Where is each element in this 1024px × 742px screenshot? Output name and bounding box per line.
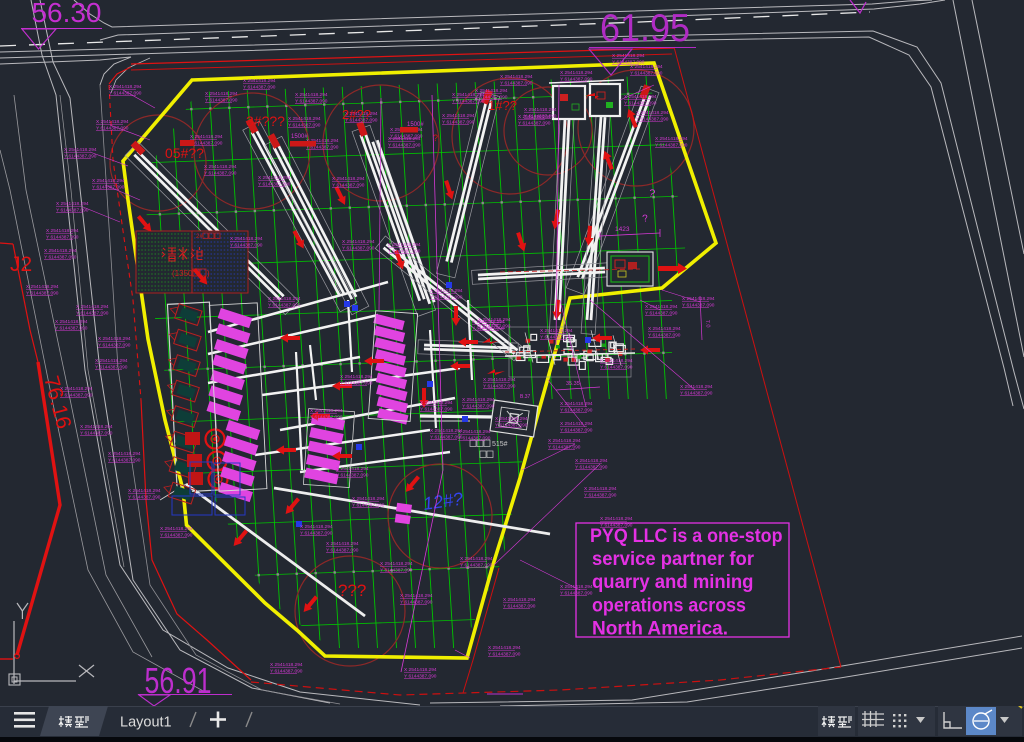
- svg-text:1500#: 1500#: [407, 122, 424, 128]
- svg-text:North America.: North America.: [592, 617, 728, 639]
- svg-text:???: ???: [338, 581, 366, 600]
- svg-text:1500#: 1500#: [291, 134, 308, 140]
- svg-text:B.37: B.37: [520, 394, 531, 400]
- svg-text:56.30: 56.30: [32, 0, 102, 28]
- svg-text:7.0: 7.0: [704, 320, 711, 328]
- svg-text:Layout1: Layout1: [120, 715, 172, 731]
- svg-text:05#??: 05#??: [165, 145, 204, 161]
- svg-text:2#: 2#: [196, 234, 203, 240]
- svg-text:service partner for: service partner for: [592, 548, 754, 570]
- svg-text:61.95: 61.95: [600, 7, 690, 50]
- svg-text:35.35: 35.35: [566, 381, 580, 387]
- svg-text:?: ?: [433, 133, 438, 143]
- svg-text:PYQ LLC is a one-stop: PYQ LLC is a one-stop: [590, 525, 783, 547]
- svg-text:2#??: 2#??: [342, 107, 371, 122]
- svg-text:operations across: operations across: [592, 594, 746, 616]
- svg-text:515#: 515#: [492, 441, 508, 448]
- svg-text:3#???: 3#???: [246, 113, 285, 129]
- svg-text:): ): [207, 269, 210, 278]
- svg-text:1#??: 1#??: [488, 98, 517, 113]
- svg-text:1423: 1423: [615, 226, 630, 233]
- svg-text:quarry and mining: quarry and mining: [592, 571, 754, 593]
- svg-text:(1350: (1350: [172, 269, 193, 278]
- svg-text:J2: J2: [10, 253, 32, 276]
